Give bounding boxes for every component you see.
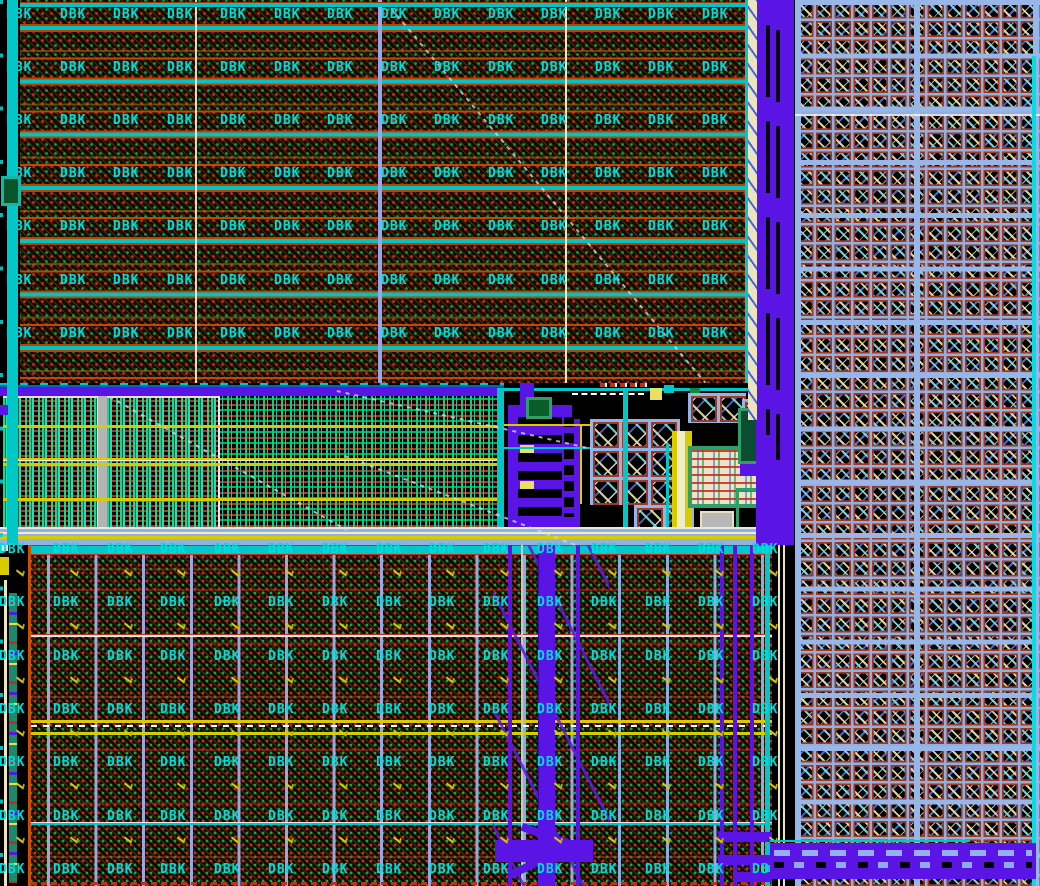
marker-box bbox=[1, 176, 21, 206]
cell-label: DBK bbox=[60, 220, 86, 233]
cell-label: DBK bbox=[60, 274, 86, 287]
cell-label: DBK bbox=[645, 703, 671, 716]
cell-label: DBK bbox=[645, 756, 671, 769]
edge-cell-strip bbox=[9, 593, 17, 883]
cell-label: DBK bbox=[541, 114, 567, 127]
cell-label: DBK bbox=[376, 650, 402, 663]
cell-label: DBK bbox=[327, 327, 353, 340]
cell-label: DBK bbox=[160, 650, 186, 663]
cell-label: DBK bbox=[541, 61, 567, 74]
cell-label: DBK bbox=[274, 61, 300, 74]
check-mark bbox=[16, 673, 25, 683]
cell-label: DBK bbox=[595, 274, 621, 287]
cell-label: DBK bbox=[60, 8, 86, 21]
cell-label: DBK bbox=[53, 810, 79, 823]
cell-label: DBK bbox=[541, 8, 567, 21]
cell-label: DBK bbox=[591, 863, 617, 876]
metal-bus bbox=[770, 843, 1036, 879]
cell-label: DBK bbox=[429, 810, 455, 823]
slot-column bbox=[564, 417, 574, 517]
cell-label: DBK bbox=[488, 167, 514, 180]
edge-line bbox=[0, 536, 772, 539]
cell-label: DBK bbox=[591, 810, 617, 823]
metal-strap bbox=[718, 832, 772, 842]
cell-label: DBK bbox=[167, 8, 193, 21]
power-line bbox=[3, 498, 218, 501]
cell-label: DBK bbox=[483, 703, 509, 716]
cell-label: DBK bbox=[702, 114, 728, 127]
edge-line bbox=[783, 545, 785, 886]
cell-label: DBK bbox=[274, 220, 300, 233]
cell-label: DBK bbox=[160, 756, 186, 769]
cyan-rail bbox=[497, 388, 504, 545]
cell-label: DBK bbox=[488, 220, 514, 233]
power-line bbox=[31, 720, 772, 723]
cell-label: DBK bbox=[698, 543, 724, 556]
cell-label: DBK bbox=[107, 756, 133, 769]
cell-label: DBK bbox=[698, 650, 724, 663]
cell-label: DBK bbox=[488, 8, 514, 21]
cell-label: DBK bbox=[322, 650, 348, 663]
cell-label: DBK bbox=[648, 114, 674, 127]
cell-label: DBK bbox=[113, 220, 139, 233]
cell-label: DBK bbox=[537, 810, 563, 823]
cell-label: DBK bbox=[322, 703, 348, 716]
cell-label: DBK bbox=[376, 543, 402, 556]
cell-label: DBK bbox=[595, 220, 621, 233]
cell-label: DBK bbox=[60, 167, 86, 180]
cell-label: DBK bbox=[488, 114, 514, 127]
cell-label: DBK bbox=[274, 327, 300, 340]
power-line bbox=[31, 725, 772, 727]
cell-label: DBK bbox=[752, 810, 778, 823]
hatch-strip bbox=[748, 0, 757, 420]
via-dashes bbox=[774, 862, 1032, 868]
power-line bbox=[218, 425, 497, 428]
layout-canvas[interactable]: DBKDBKDBKDBKDBKDBKDBKDBKDBKDBKDBKDBKDBKD… bbox=[0, 0, 1040, 886]
cell-label: DBK bbox=[327, 274, 353, 287]
cell-label: DBK bbox=[702, 61, 728, 74]
slot bbox=[518, 489, 562, 498]
cell-label: DBK bbox=[107, 596, 133, 609]
cell-label: DBK bbox=[702, 167, 728, 180]
slot bbox=[518, 453, 562, 462]
column-divider bbox=[195, 0, 197, 383]
cell-label: DBK bbox=[698, 810, 724, 823]
cell-label: DBK bbox=[113, 61, 139, 74]
cell-label: DBK bbox=[488, 61, 514, 74]
cell-label: DBK bbox=[541, 167, 567, 180]
cell-label: DBK bbox=[60, 61, 86, 74]
cell-label: DBK bbox=[591, 650, 617, 663]
cell-label: DBK bbox=[429, 650, 455, 663]
cell-label: DBK bbox=[537, 756, 563, 769]
cell-label: DBK bbox=[220, 327, 246, 340]
cell-label: DBK bbox=[376, 810, 402, 823]
cell-label: DBK bbox=[483, 596, 509, 609]
cell-label: DBK bbox=[752, 703, 778, 716]
cell-label: DBK bbox=[698, 703, 724, 716]
cell-label: DBK bbox=[381, 220, 407, 233]
cell-label: DBK bbox=[53, 543, 79, 556]
cell-label: DBK bbox=[434, 114, 460, 127]
cell-label: DBK bbox=[698, 863, 724, 876]
cell bbox=[650, 388, 662, 400]
cell-label: DBK bbox=[376, 596, 402, 609]
cell-label: DBK bbox=[113, 327, 139, 340]
cell-label: DBK bbox=[274, 114, 300, 127]
cell-label: DBK bbox=[381, 167, 407, 180]
row-separator bbox=[31, 882, 772, 885]
check-mark bbox=[16, 619, 25, 629]
cell-label: DBK bbox=[434, 327, 460, 340]
cell-label: DBK bbox=[648, 220, 674, 233]
cell-label: DBK bbox=[214, 756, 240, 769]
cell-label: DBK bbox=[429, 756, 455, 769]
cell-label: DBK bbox=[483, 543, 509, 556]
cell-label: DBK bbox=[113, 274, 139, 287]
cell-label: DBK bbox=[591, 596, 617, 609]
cell-label: DBK bbox=[327, 220, 353, 233]
cell-label: DBK bbox=[274, 274, 300, 287]
cell-label: DBK bbox=[268, 756, 294, 769]
cell-label: DBK bbox=[483, 756, 509, 769]
cell-label: DBK bbox=[752, 756, 778, 769]
cell-label: DBK bbox=[214, 596, 240, 609]
cell-label: DBK bbox=[167, 327, 193, 340]
edge-line bbox=[28, 545, 31, 886]
slot bbox=[518, 471, 562, 480]
cell-label: DBK bbox=[167, 220, 193, 233]
check-mark bbox=[16, 779, 25, 789]
cell-label: DBK bbox=[434, 8, 460, 21]
cell-label: DBK bbox=[698, 756, 724, 769]
cell-label: DBK bbox=[429, 703, 455, 716]
cell-label: DBK bbox=[113, 114, 139, 127]
cell-label: DBK bbox=[381, 274, 407, 287]
cell-label: DBK bbox=[160, 596, 186, 609]
cell-label: DBK bbox=[541, 220, 567, 233]
cell-label: DBK bbox=[274, 8, 300, 21]
cell-label: DBK bbox=[483, 650, 509, 663]
cell-label: DBK bbox=[537, 703, 563, 716]
cell-label: DBK bbox=[220, 274, 246, 287]
cell-label: DBK bbox=[0, 703, 25, 716]
cell-label: DBK bbox=[645, 596, 671, 609]
cell-label: DBK bbox=[214, 703, 240, 716]
cell-label: DBK bbox=[327, 167, 353, 180]
cell-label: DBK bbox=[322, 863, 348, 876]
cell-label: DBK bbox=[0, 863, 25, 876]
cell-label: DBK bbox=[220, 61, 246, 74]
cell-label: DBK bbox=[53, 650, 79, 663]
edge-line bbox=[4, 580, 7, 886]
slot-line bbox=[766, 25, 770, 435]
cell-label: DBK bbox=[645, 543, 671, 556]
cell-label: DBK bbox=[434, 220, 460, 233]
cell-label: DBK bbox=[752, 543, 778, 556]
via-dashes bbox=[774, 850, 1032, 856]
power-line bbox=[504, 424, 592, 426]
slot-line bbox=[776, 30, 780, 460]
blockage bbox=[572, 393, 644, 419]
cell-label: DBK bbox=[702, 274, 728, 287]
cell-label: DBK bbox=[541, 274, 567, 287]
cell-label: DBK bbox=[214, 543, 240, 556]
cell-label: DBK bbox=[220, 8, 246, 21]
cell-label: DBK bbox=[429, 863, 455, 876]
cell-label: DBK bbox=[268, 543, 294, 556]
edge-line bbox=[0, 532, 772, 534]
ruler-ticks bbox=[0, 0, 3, 886]
cell-label: DBK bbox=[167, 61, 193, 74]
cell-label: DBK bbox=[381, 327, 407, 340]
cell-label: DBK bbox=[752, 596, 778, 609]
metal-track bbox=[576, 545, 580, 886]
marker-box bbox=[526, 397, 552, 419]
cell-label: DBK bbox=[160, 863, 186, 876]
cell-label: DBK bbox=[160, 543, 186, 556]
cell-label: DBK bbox=[376, 703, 402, 716]
cell-label: DBK bbox=[591, 703, 617, 716]
cell-label: DBK bbox=[376, 756, 402, 769]
cyan-rail bbox=[623, 391, 628, 545]
cell-label: DBK bbox=[434, 167, 460, 180]
cell-label: DBK bbox=[322, 756, 348, 769]
cell-label: DBK bbox=[537, 863, 563, 876]
cell-label: DBK bbox=[488, 274, 514, 287]
metal-rail bbox=[0, 385, 508, 396]
cell-label: DBK bbox=[0, 543, 25, 556]
slot bbox=[518, 507, 562, 516]
grid-line bbox=[795, 114, 1040, 116]
cyan-rail bbox=[504, 447, 590, 449]
cell-label: DBK bbox=[645, 650, 671, 663]
cell-label: DBK bbox=[268, 863, 294, 876]
cell-label: DBK bbox=[113, 8, 139, 21]
cell-label: DBK bbox=[541, 327, 567, 340]
routing-stripes-left bbox=[3, 396, 218, 527]
cell-label: DBK bbox=[107, 863, 133, 876]
cell-label: DBK bbox=[702, 327, 728, 340]
cell-label: DBK bbox=[698, 596, 724, 609]
cell-label: DBK bbox=[381, 8, 407, 21]
cell-label: DBK bbox=[752, 650, 778, 663]
via-grid-array bbox=[795, 0, 1040, 886]
cell-label: DBK bbox=[434, 61, 460, 74]
cell-label: DBK bbox=[483, 863, 509, 876]
cell-label: DBK bbox=[537, 650, 563, 663]
cell bbox=[520, 481, 534, 489]
cell-label: DBK bbox=[60, 114, 86, 127]
check-mark bbox=[16, 833, 25, 843]
cell-label: DBK bbox=[107, 650, 133, 663]
cell-label: DBK bbox=[595, 167, 621, 180]
cell-label: DBK bbox=[434, 274, 460, 287]
cell-label: DBK bbox=[268, 596, 294, 609]
cell-label: DBK bbox=[648, 61, 674, 74]
cell-label: DBK bbox=[537, 543, 563, 556]
cell-label: DBK bbox=[53, 596, 79, 609]
cell-label: DBK bbox=[53, 863, 79, 876]
edge-rail bbox=[7, 0, 18, 545]
cell-label: DBK bbox=[53, 756, 79, 769]
cell-label: DBK bbox=[595, 114, 621, 127]
check-mark bbox=[16, 726, 25, 736]
cell-label: DBK bbox=[376, 863, 402, 876]
edge-rail bbox=[745, 0, 748, 383]
cell-label: DBK bbox=[53, 703, 79, 716]
cell-label: DBK bbox=[702, 220, 728, 233]
cell-label: DBK bbox=[595, 8, 621, 21]
cell-label: DBK bbox=[648, 8, 674, 21]
cell-label: DBK bbox=[645, 863, 671, 876]
cell-label: DBK bbox=[160, 703, 186, 716]
cell-label: DBK bbox=[107, 543, 133, 556]
cell-label: DBK bbox=[381, 61, 407, 74]
cell-label: DBK bbox=[488, 327, 514, 340]
cell bbox=[664, 385, 674, 393]
cell-label: DBK bbox=[214, 810, 240, 823]
cell-label: DBK bbox=[107, 810, 133, 823]
cell-label: DBK bbox=[327, 8, 353, 21]
power-line bbox=[3, 458, 218, 466]
cell-label: DBK bbox=[645, 810, 671, 823]
cell-label: DBK bbox=[327, 61, 353, 74]
cell-label: DBK bbox=[167, 274, 193, 287]
cell-label: DBK bbox=[0, 596, 25, 609]
cell-label: DBK bbox=[60, 327, 86, 340]
cyan-rail bbox=[770, 840, 970, 842]
cell-label: DBK bbox=[381, 114, 407, 127]
cell-label: DBK bbox=[429, 596, 455, 609]
cell-label: DBK bbox=[220, 114, 246, 127]
cell-label: DBK bbox=[268, 703, 294, 716]
cell-label: DBK bbox=[0, 810, 25, 823]
cell-label: DBK bbox=[167, 167, 193, 180]
cell-label: DBK bbox=[322, 543, 348, 556]
cell-label: DBK bbox=[113, 167, 139, 180]
cell-label: DBK bbox=[648, 274, 674, 287]
cell-label: DBK bbox=[268, 810, 294, 823]
cell-label: DBK bbox=[274, 167, 300, 180]
cell-label: DBK bbox=[648, 167, 674, 180]
cell-label: DBK bbox=[167, 114, 193, 127]
cell-label: DBK bbox=[0, 650, 25, 663]
cell-label: DBK bbox=[483, 810, 509, 823]
cell-label: DBK bbox=[648, 327, 674, 340]
cell-label: DBK bbox=[107, 703, 133, 716]
cell-label: DBK bbox=[537, 596, 563, 609]
cell-label: DBK bbox=[595, 327, 621, 340]
metal-stub bbox=[0, 405, 8, 415]
check-mark bbox=[16, 566, 25, 576]
cell-label: DBK bbox=[595, 61, 621, 74]
cell-label: DBK bbox=[160, 810, 186, 823]
cell-label: DBK bbox=[0, 756, 25, 769]
cell-label: DBK bbox=[591, 756, 617, 769]
cell-label: DBK bbox=[214, 863, 240, 876]
cyan-rail bbox=[1032, 56, 1036, 886]
dash-row bbox=[600, 383, 648, 387]
row-separator bbox=[31, 634, 772, 637]
cell-label: DBK bbox=[322, 810, 348, 823]
cell-label: DBK bbox=[327, 114, 353, 127]
cell-label: DBK bbox=[268, 650, 294, 663]
cell-label: DBK bbox=[220, 167, 246, 180]
power-line bbox=[3, 425, 218, 428]
cell-label: DBK bbox=[429, 543, 455, 556]
cell-label: DBK bbox=[591, 543, 617, 556]
cell-label: DBK bbox=[322, 596, 348, 609]
cell-label: DBK bbox=[702, 8, 728, 21]
power-line bbox=[580, 424, 582, 504]
cell-label: DBK bbox=[214, 650, 240, 663]
cell-label: DBK bbox=[220, 220, 246, 233]
